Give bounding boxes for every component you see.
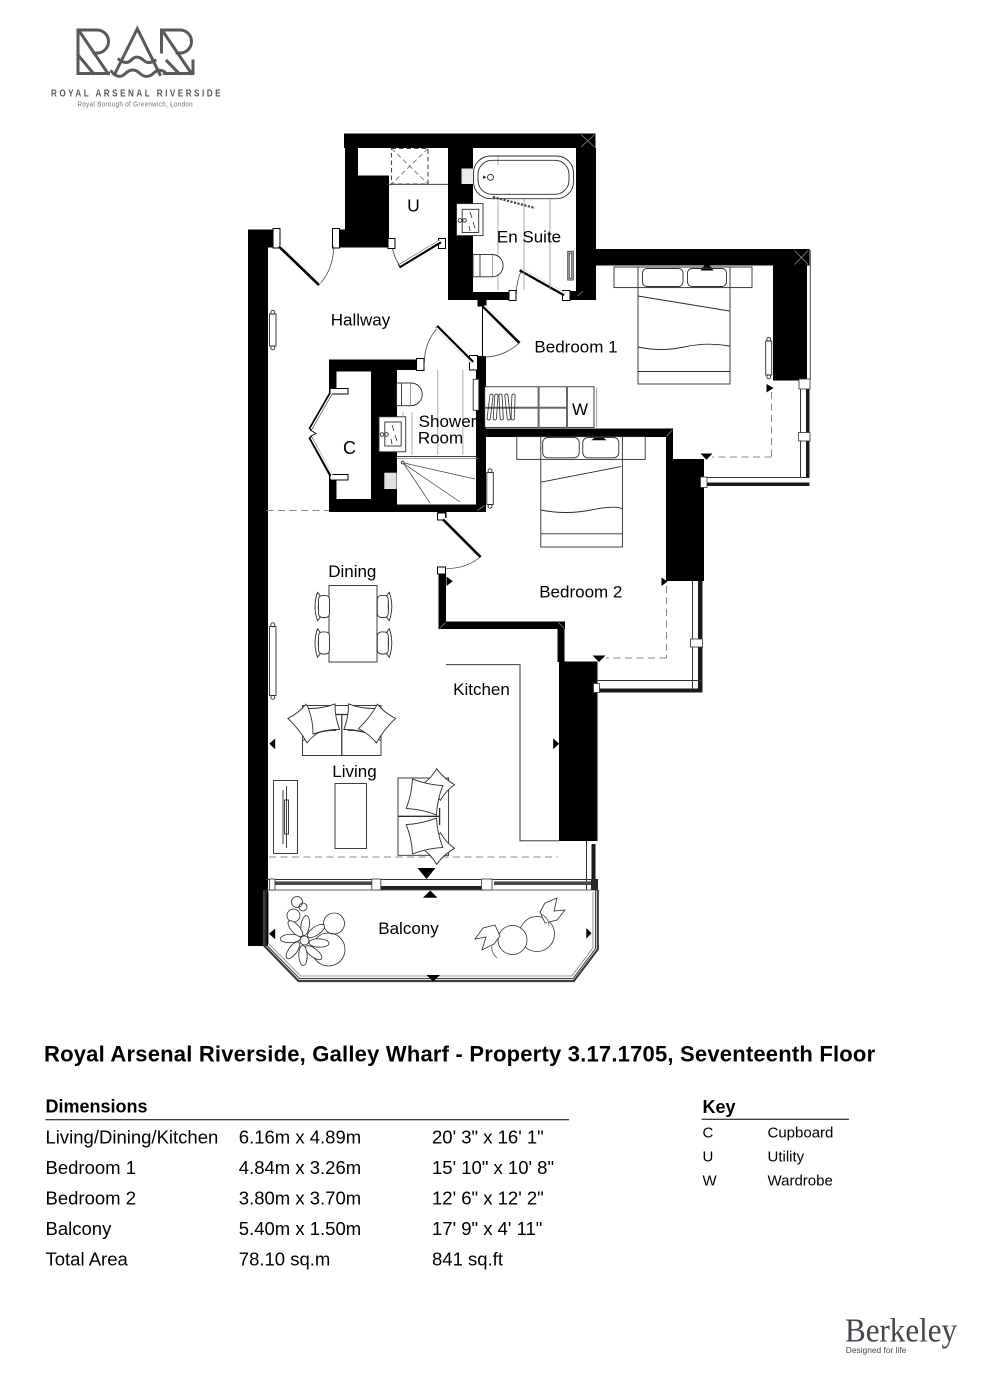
svg-text:4.84m x 3.26m: 4.84m x 3.26m [239,1157,361,1178]
svg-text:U: U [703,1148,714,1165]
svg-text:Bedroom 1: Bedroom 1 [46,1157,137,1178]
svg-text:Bedroom 1: Bedroom 1 [534,338,617,357]
svg-text:Bedroom 2: Bedroom 2 [539,583,622,602]
svg-text:15' 10" x 10' 8": 15' 10" x 10' 8" [432,1157,554,1178]
svg-text:C: C [343,438,356,458]
svg-text:C: C [703,1124,714,1141]
svg-text:Hallway: Hallway [331,311,391,330]
svg-text:Designed for life: Designed for life [846,1345,907,1355]
svg-text:841 sq.ft: 841 sq.ft [432,1249,503,1270]
svg-text:Kitchen: Kitchen [453,680,510,699]
svg-text:78.10 sq.m: 78.10 sq.m [239,1249,331,1270]
svg-text:W: W [572,400,588,419]
svg-text:Living: Living [332,762,376,781]
svg-text:5.40m x 1.50m: 5.40m x 1.50m [239,1218,361,1239]
svg-text:6.16m x 4.89m: 6.16m x 4.89m [239,1126,361,1147]
svg-text:Key: Key [703,1097,736,1117]
svg-text:17' 9" x 4' 11": 17' 9" x 4' 11" [432,1218,542,1239]
svg-text:W: W [703,1173,718,1190]
svg-text:Bedroom 2: Bedroom 2 [46,1188,137,1209]
svg-text:12' 6" x 12' 2": 12' 6" x 12' 2" [432,1188,544,1209]
svg-text:Balcony: Balcony [46,1218,113,1239]
svg-text:U: U [407,196,420,216]
svg-text:Living/Dining/Kitchen: Living/Dining/Kitchen [46,1126,219,1147]
svg-text:Room: Room [418,429,463,448]
svg-text:Berkeley: Berkeley [845,1313,957,1350]
svg-text:Balcony: Balcony [378,919,439,938]
svg-text:Dining: Dining [328,562,376,581]
svg-text:Royal Borough of Greenwich, Lo: Royal Borough of Greenwich, London [78,100,194,109]
svg-text:Dimensions: Dimensions [46,1097,148,1117]
svg-text:20' 3" x 16' 1": 20' 3" x 16' 1" [432,1126,544,1147]
svg-text:Utility: Utility [768,1148,805,1165]
svg-text:3.80m x 3.70m: 3.80m x 3.70m [239,1188,361,1209]
svg-text:Total Area: Total Area [46,1249,129,1270]
svg-text:Wardrobe: Wardrobe [768,1173,833,1190]
svg-text:ROYAL ARSENAL RIVERSIDE: ROYAL ARSENAL RIVERSIDE [51,88,223,100]
svg-text:En Suite: En Suite [497,228,561,247]
svg-text:Cupboard: Cupboard [768,1124,834,1141]
svg-text:Royal Arsenal Riverside, Galle: Royal Arsenal Riverside, Galley Wharf - … [44,1042,876,1067]
